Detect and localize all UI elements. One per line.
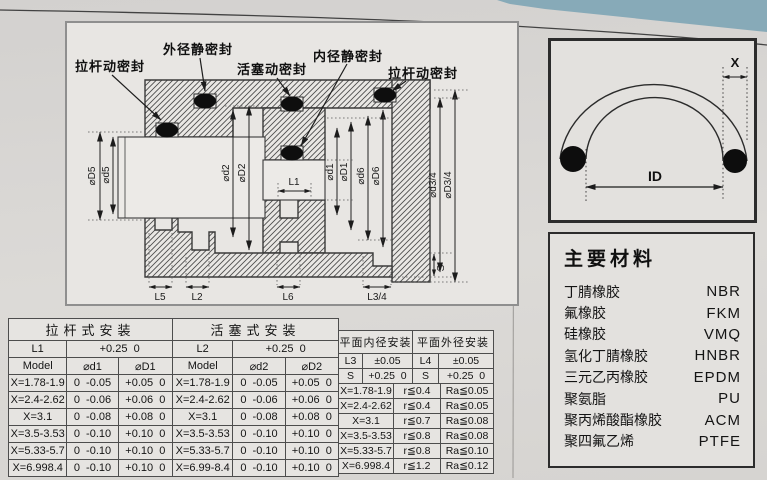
o-ring-rod-right [374,88,396,103]
table-row: X=5.33-5.7r≦0.8Ra≦0.10 [339,444,494,459]
material-name: 氟橡胶 [564,303,606,323]
material-name: 丁腈橡胶 [564,282,620,302]
table-cell: X=5.33-5.7 [173,443,233,460]
oring-figure-box: X ID [548,38,757,223]
dim-label-d34: ⌀d3/4 [428,172,439,198]
table-row: X=6.998.4r≦1.2Ra≦0.12 [339,459,494,474]
o-ring-od-static [194,94,216,109]
dim-label-D1: ⌀D1 [339,162,350,181]
material-row: 硅橡胶VMQ [564,324,741,345]
material-name: 聚丙烯酸酯橡胶 [564,410,662,430]
table-cell: 0 -0.06 [233,392,285,409]
right-column-block [392,80,430,282]
oring-cross-section-right [723,149,747,173]
face-inner-dim-tol: ±0.05 [363,354,413,369]
catalog-page: { "page": {"paper_color": "#dcdad7", "in… [0,0,767,480]
table-cell: X=1.78-1.9 [9,375,67,392]
table-cell: Ra≦0.08 [441,414,494,429]
table-row: X=3.5-3.530 -0.10+0.10 0 [173,426,339,443]
table-cell: X=3.5-3.53 [173,426,233,443]
table-cell: +0.10 0 [118,443,172,460]
table-cell: r≦0.4 [394,384,441,399]
column-header: ⌀D2 [285,358,338,375]
dim-label-D6: ⌀D6 [371,166,382,185]
material-name: 聚四氟乙烯 [564,431,634,451]
dim-label-D2: ⌀D2 [237,163,248,182]
table-cell: +0.06 0 [285,392,338,409]
table-cell: X=3.1 [9,409,67,426]
table-row: X=3.10 -0.08+0.08 0 [173,409,339,426]
material-row: 三元乙丙橡胶EPDM [564,367,741,388]
material-code: ACM [705,412,741,429]
material-name: 三元乙丙橡胶 [564,367,648,387]
table-row: X=6.998.40 -0.10+0.10 0 [9,460,173,477]
piston-dim-tol-cell: +0.25 0 [233,341,339,358]
dim-label-L5: L5 [154,292,166,303]
table-cell: +0.08 0 [118,409,172,426]
dim-label-d5: ⌀d5 [101,166,112,184]
materials-title: 主要材料 [564,244,741,271]
oring-figure: X ID [551,41,754,220]
material-name: 硅橡胶 [564,324,606,344]
table-cell: Ra≦0.05 [441,384,494,399]
material-name: 氢化丁腈橡胶 [564,346,648,366]
dim-label-D34: ⌀D3/4 [443,171,454,199]
table-cell: 0 -0.06 [67,392,118,409]
table-cell: r≦0.4 [394,399,441,414]
materials-panel: 主要材料 丁腈橡胶NBR 氟橡胶FKM 硅橡胶VMQ 氢化丁腈橡胶HNBR 三元… [548,232,755,468]
face-outer-title: 平面外径安装 [413,331,494,354]
table-row: X=1.78-1.90 -0.05+0.05 0 [9,375,173,392]
dim-label-L2: L2 [191,292,203,303]
face-inner-s: S [339,369,363,384]
material-code: FKM [706,305,741,322]
dim-label-L6: L6 [282,292,294,303]
column-header: Model [9,358,67,375]
column-header: ⌀D1 [118,358,172,375]
dim-label-d2: ⌀d2 [221,164,232,182]
table-cell: 0 -0.05 [67,375,118,392]
dim-label-S: S [436,264,447,271]
table-row: X=3.10 -0.08+0.08 0 [9,409,173,426]
table-cell: X=5.33-5.7 [9,443,67,460]
table-cell: Ra≦0.12 [441,459,494,474]
table-cell: X=2.4-2.62 [339,399,394,414]
oring-cross-section-left [560,146,586,172]
callout-od-static-seal: 外径静密封 [162,42,233,57]
table-cell: X=6.99-8.4 [173,460,233,477]
table-cell: X=5.33-5.7 [339,444,394,459]
dim-label-d1: ⌀d1 [325,163,336,181]
material-code: PTFE [699,433,741,450]
table-row: X=1.78-1.90 -0.05+0.05 0 [173,375,339,392]
material-row: 氢化丁腈橡胶HNBR [564,345,741,366]
oring-outer-arc [560,85,747,161]
face-install-table: 平面内径安装 平面外径安装 L3 ±0.05 L4 ±0.05 S +0.25 … [338,330,494,474]
face-outer-s-tol: +0.25 0 [439,369,494,384]
table-row: X=5.33-5.70 -0.10+0.10 0 [9,443,173,460]
material-code: VMQ [704,326,741,343]
table-cell: 0 -0.10 [67,460,118,477]
column-header: Model [173,358,233,375]
table-cell: 0 -0.10 [233,426,285,443]
table-cell: X=2.4-2.62 [173,392,233,409]
table-cell: +0.10 0 [118,460,172,477]
table-cell: 0 -0.10 [67,426,118,443]
table-row: X=5.33-5.70 -0.10+0.10 0 [173,443,339,460]
material-code: EPDM [694,369,741,386]
piston-dim-cell: L2 [173,341,233,358]
table-cell: Ra≦0.08 [441,429,494,444]
table-cell: X=3.1 [339,414,394,429]
material-name: 聚氨脂 [564,389,606,409]
face-outer-dim-tol: ±0.05 [439,354,494,369]
table-cell: Ra≦0.10 [441,444,494,459]
dim-label-L1: L1 [288,177,300,188]
table-cell: +0.05 0 [285,375,338,392]
face-inner-title: 平面内径安装 [339,331,413,354]
material-row: 聚四氟乙烯PTFE [564,431,741,452]
table-cell: r≦0.7 [394,414,441,429]
material-row: 聚氨脂PU [564,388,741,409]
table-cell: X=1.78-1.9 [339,384,394,399]
table-cell: 0 -0.10 [67,443,118,460]
table-cell: 0 -0.08 [233,409,285,426]
table-cell: X=2.4-2.62 [9,392,67,409]
piston-install-table: 活塞式安装 L2+0.25 0 Model⌀d2⌀D2 X=1.78-1.90 … [172,318,339,477]
table-cell: +0.10 0 [285,443,338,460]
oring-inner-arc [586,98,723,161]
face-inner-s-tol: +0.25 0 [363,369,413,384]
table-row: X=2.4-2.620 -0.06+0.06 0 [173,392,339,409]
table-cell: X=1.78-1.9 [173,375,233,392]
table-cell: X=3.5-3.53 [339,429,394,444]
table-row: X=3.1r≦0.7Ra≦0.08 [339,414,494,429]
piston-table-title: 活塞式安装 [173,319,339,341]
table-row: X=2.4-2.62r≦0.4Ra≦0.05 [339,399,494,414]
rod-dim-tol-cell: +0.25 0 [67,341,173,358]
callout-id-static-seal: 内径静密封 [313,49,383,64]
material-code: PU [718,390,741,407]
material-row: 丁腈橡胶NBR [564,281,741,302]
callout-piston-seal: 活塞动密封 [237,62,307,77]
table-cell: r≦1.2 [394,459,441,474]
material-row: 氟橡胶FKM [564,302,741,323]
table-row: X=2.4-2.620 -0.06+0.06 0 [9,392,173,409]
table-row: X=3.5-3.530 -0.10+0.10 0 [9,426,173,443]
face-outer-s: S [413,369,439,384]
table-cell: +0.05 0 [118,375,172,392]
table-cell: +0.10 0 [285,426,338,443]
table-row: X=3.5-3.53r≦0.8Ra≦0.08 [339,429,494,444]
material-code: HNBR [694,347,741,364]
table-row: X=6.99-8.40 -0.10+0.10 0 [173,460,339,477]
table-cell: 0 -0.05 [233,375,285,392]
x-dimension-label: X [731,55,740,70]
rod-dim-cell: L1 [9,341,67,358]
rod-install-table: 拉杆式安装 L1+0.25 0 Model⌀d1⌀D1 X=1.78-1.90 … [8,318,173,477]
callout-rod-seal-right: 拉杆动密封 [388,66,458,81]
table-cell: X=3.5-3.53 [9,426,67,443]
material-row: 聚丙烯酸酯橡胶ACM [564,409,741,430]
callout-rod-seal-left: 拉杆动密封 [75,59,145,74]
dim-label-d6: ⌀d6 [356,167,367,185]
o-ring-rod-left [156,123,178,138]
table-cell: +0.06 0 [118,392,172,409]
rod-table-title: 拉杆式安装 [9,319,173,341]
table-cell: X=6.998.4 [9,460,67,477]
table-cell: X=3.1 [173,409,233,426]
column-header: ⌀d2 [233,358,285,375]
table-cell: r≦0.8 [394,444,441,459]
o-ring-id-static [281,146,303,161]
table-cell: 0 -0.10 [233,443,285,460]
table-cell: +0.10 0 [285,460,338,477]
table-cell: r≦0.8 [394,429,441,444]
id-dimension-label: ID [648,168,662,184]
dim-label-L34: L3/4 [367,292,387,303]
table-cell: X=6.998.4 [339,459,394,474]
dim-label-D5: ⌀D5 [87,166,98,185]
o-ring-piston [281,97,303,112]
table-row: X=1.78-1.9r≦0.4Ra≦0.05 [339,384,494,399]
table-cell: +0.10 0 [118,426,172,443]
column-header: ⌀d1 [67,358,118,375]
face-inner-dim: L3 [339,354,363,369]
table-cell: 0 -0.08 [67,409,118,426]
face-outer-dim: L4 [413,354,439,369]
table-cell: 0 -0.10 [233,460,285,477]
table-cell: +0.08 0 [285,409,338,426]
material-code: NBR [706,283,741,300]
cylinder-cross-section-diagram: 拉杆动密封 外径静密封 活塞动密封 内径静密封 拉杆动密封 [0,0,540,316]
table-cell: Ra≦0.05 [441,399,494,414]
